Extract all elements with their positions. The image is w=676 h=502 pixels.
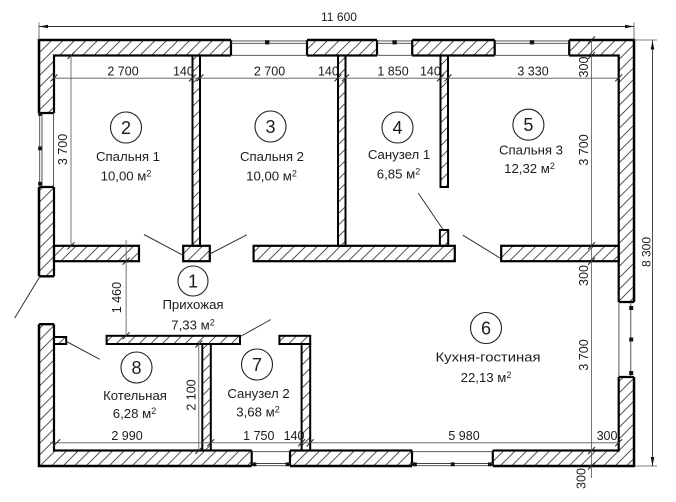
svg-text:Санузел 1: Санузел 1: [368, 147, 430, 162]
svg-text:300: 300: [577, 57, 591, 78]
svg-text:Прихожая: Прихожая: [162, 297, 223, 312]
svg-text:300: 300: [597, 429, 618, 443]
svg-text:3,68 м2: 3,68 м2: [236, 405, 279, 420]
svg-text:2 700: 2 700: [254, 65, 285, 79]
svg-text:300: 300: [575, 468, 589, 489]
svg-text:11 600: 11 600: [321, 12, 357, 24]
svg-text:Спальня 3: Спальня 3: [499, 143, 563, 158]
svg-text:10,00 м2: 10,00 м2: [101, 169, 152, 184]
svg-text:Спальня 2: Спальня 2: [240, 149, 304, 164]
svg-text:6,28 м2: 6,28 м2: [113, 406, 156, 421]
svg-text:140: 140: [420, 65, 441, 79]
svg-text:22,13 м2: 22,13 м2: [461, 370, 512, 385]
svg-text:3 700: 3 700: [56, 134, 70, 165]
svg-text:3: 3: [265, 117, 275, 137]
svg-text:7: 7: [252, 355, 262, 375]
svg-text:2 100: 2 100: [184, 379, 198, 410]
svg-text:1 460: 1 460: [110, 282, 124, 313]
svg-text:4: 4: [392, 118, 402, 138]
svg-text:2: 2: [121, 118, 131, 138]
svg-text:3 330: 3 330: [517, 65, 548, 79]
svg-text:7,33 м2: 7,33 м2: [171, 318, 214, 333]
svg-text:10,00 м2: 10,00 м2: [246, 169, 297, 184]
svg-text:5: 5: [523, 115, 533, 135]
svg-text:140: 140: [173, 65, 194, 79]
svg-text:Кухня-гостиная: Кухня-гостиная: [436, 350, 541, 365]
svg-text:300: 300: [577, 265, 591, 286]
svg-text:140: 140: [284, 429, 305, 443]
svg-text:3 700: 3 700: [577, 339, 591, 370]
svg-text:2 700: 2 700: [107, 65, 138, 79]
svg-text:Котельная: Котельная: [103, 388, 167, 403]
svg-text:5 980: 5 980: [448, 429, 479, 443]
svg-text:6,85 м2: 6,85 м2: [377, 167, 420, 182]
svg-text:1 750: 1 750: [243, 429, 274, 443]
svg-text:6: 6: [481, 319, 491, 339]
svg-text:Спальня 1: Спальня 1: [96, 149, 160, 164]
svg-text:2 990: 2 990: [111, 429, 142, 443]
svg-text:140: 140: [318, 65, 339, 79]
svg-text:8 300: 8 300: [642, 237, 654, 267]
svg-text:3 700: 3 700: [577, 134, 591, 165]
svg-text:1: 1: [188, 272, 198, 292]
svg-text:Санузел 2: Санузел 2: [227, 386, 289, 401]
svg-text:1 850: 1 850: [377, 65, 408, 79]
svg-text:12,32 м2: 12,32 м2: [504, 161, 555, 176]
svg-text:8: 8: [131, 358, 141, 378]
